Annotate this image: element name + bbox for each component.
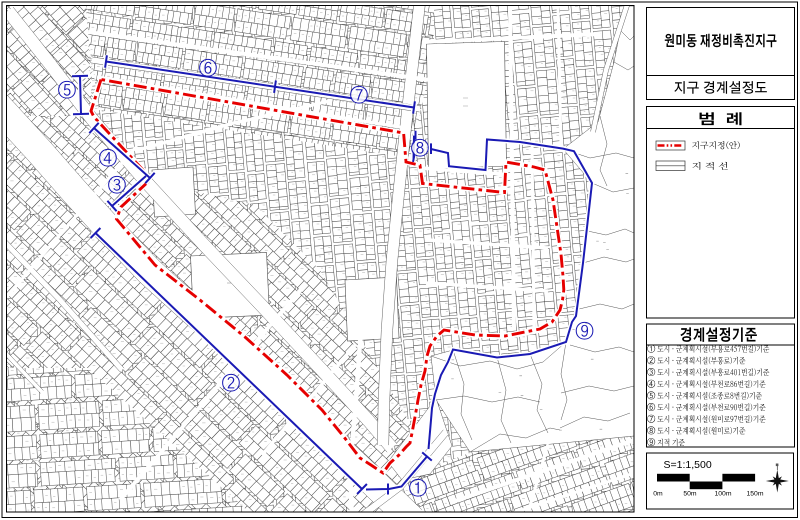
svg-text:150m: 150m: [746, 491, 763, 498]
svg-text:100m: 100m: [714, 491, 731, 498]
svg-text:S=1:1,500: S=1:1,500: [664, 459, 712, 471]
svg-text:50m: 50m: [683, 491, 697, 498]
svg-text:0m: 0m: [653, 491, 663, 498]
